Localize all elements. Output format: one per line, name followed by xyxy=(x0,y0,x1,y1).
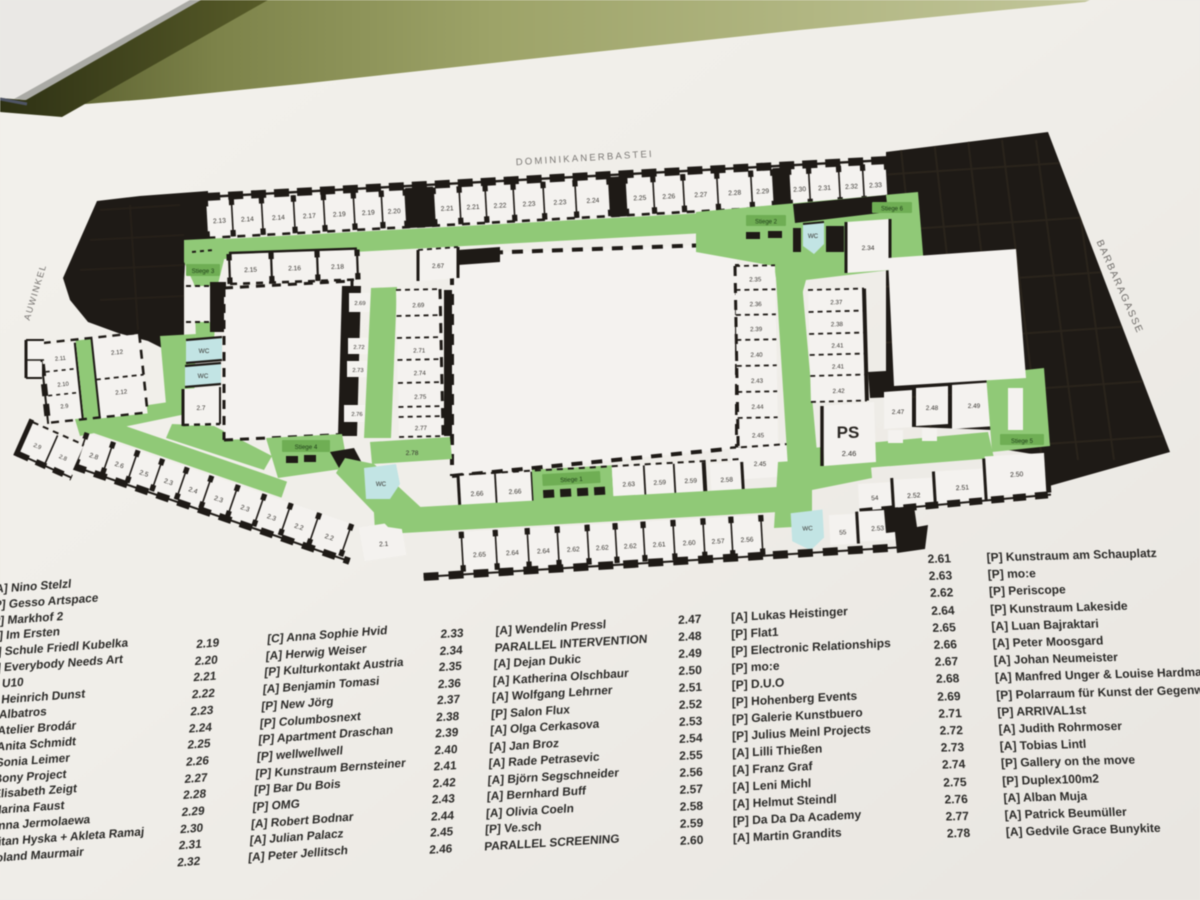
svg-text:Stiege 1: Stiege 1 xyxy=(560,476,584,484)
svg-text:2.63: 2.63 xyxy=(622,481,635,489)
svg-text:2.9: 2.9 xyxy=(60,404,69,411)
svg-text:2.15: 2.15 xyxy=(244,267,257,274)
svg-text:2.24: 2.24 xyxy=(586,197,600,205)
svg-text:2.58: 2.58 xyxy=(720,476,733,484)
svg-text:2.62: 2.62 xyxy=(624,543,638,551)
svg-text:2.42: 2.42 xyxy=(833,388,846,395)
svg-text:2.38: 2.38 xyxy=(831,321,844,328)
svg-text:2.43: 2.43 xyxy=(751,378,764,385)
svg-text:2.59: 2.59 xyxy=(653,479,666,487)
svg-text:2.31: 2.31 xyxy=(818,185,832,193)
svg-text:Stiege 5: Stiege 5 xyxy=(1011,439,1034,445)
svg-text:2.71: 2.71 xyxy=(413,347,426,354)
svg-text:2.14: 2.14 xyxy=(272,214,286,222)
svg-text:2.52: 2.52 xyxy=(907,492,921,500)
svg-text:2.72: 2.72 xyxy=(353,345,364,351)
svg-text:2.25: 2.25 xyxy=(633,195,647,203)
svg-text:2.34: 2.34 xyxy=(862,245,875,252)
svg-text:2.22: 2.22 xyxy=(493,202,507,210)
svg-text:2.62: 2.62 xyxy=(596,545,610,553)
svg-text:2.49: 2.49 xyxy=(968,403,981,410)
svg-text:2.50: 2.50 xyxy=(1010,471,1024,479)
svg-text:2.56: 2.56 xyxy=(740,536,754,544)
svg-text:2.40: 2.40 xyxy=(750,352,763,359)
svg-text:2.12: 2.12 xyxy=(111,349,124,357)
svg-text:2.1: 2.1 xyxy=(379,541,389,549)
svg-text:2.73: 2.73 xyxy=(352,368,363,374)
svg-text:2.17: 2.17 xyxy=(303,213,317,221)
svg-text:2.28: 2.28 xyxy=(728,190,742,198)
svg-text:2.75: 2.75 xyxy=(414,394,427,401)
svg-text:55: 55 xyxy=(839,529,847,536)
svg-text:2.37: 2.37 xyxy=(830,299,843,306)
svg-text:2.69: 2.69 xyxy=(354,301,365,307)
svg-text:2.47: 2.47 xyxy=(892,409,905,416)
svg-text:2.23: 2.23 xyxy=(522,201,536,209)
svg-text:2.33: 2.33 xyxy=(869,182,883,190)
svg-text:2.41: 2.41 xyxy=(831,342,844,349)
svg-text:2.36: 2.36 xyxy=(750,301,763,308)
svg-text:2.61: 2.61 xyxy=(653,541,667,549)
svg-text:2.32: 2.32 xyxy=(845,183,859,191)
svg-text:2.7: 2.7 xyxy=(197,405,206,412)
svg-text:54: 54 xyxy=(871,495,879,502)
svg-text:2.48: 2.48 xyxy=(926,405,939,412)
svg-text:2.13: 2.13 xyxy=(213,217,227,225)
svg-text:WC: WC xyxy=(199,348,210,355)
svg-text:2.45: 2.45 xyxy=(754,461,767,468)
svg-text:Stiege 3: Stiege 3 xyxy=(192,268,215,275)
svg-text:2.77: 2.77 xyxy=(415,425,428,432)
svg-text:PS: PS xyxy=(837,423,860,442)
svg-text:2.12: 2.12 xyxy=(115,388,128,396)
svg-text:2.21: 2.21 xyxy=(467,204,481,212)
svg-text:2.14: 2.14 xyxy=(241,216,255,224)
svg-text:2.29: 2.29 xyxy=(756,188,770,196)
svg-text:Stiege 6: Stiege 6 xyxy=(881,207,904,213)
svg-text:2.26: 2.26 xyxy=(662,193,676,201)
svg-text:2.64: 2.64 xyxy=(537,548,551,556)
svg-text:WC: WC xyxy=(808,233,819,240)
svg-text:2.74: 2.74 xyxy=(414,370,427,377)
svg-text:2.21: 2.21 xyxy=(441,205,455,213)
svg-text:2.60: 2.60 xyxy=(683,540,697,548)
svg-text:2.44: 2.44 xyxy=(751,404,764,411)
svg-text:2.78: 2.78 xyxy=(406,450,419,457)
svg-text:Stiege 2: Stiege 2 xyxy=(755,220,778,226)
svg-text:2.16: 2.16 xyxy=(288,265,301,272)
svg-text:2.23: 2.23 xyxy=(553,199,567,207)
svg-text:2.51: 2.51 xyxy=(956,484,970,492)
svg-text:2.10: 2.10 xyxy=(57,382,69,389)
svg-text:2.35: 2.35 xyxy=(749,276,762,283)
svg-text:2.57: 2.57 xyxy=(712,538,726,546)
svg-text:WC: WC xyxy=(802,525,813,533)
svg-text:Stiege 4: Stiege 4 xyxy=(295,444,318,451)
svg-text:2.39: 2.39 xyxy=(750,326,763,333)
svg-text:2.11: 2.11 xyxy=(55,356,66,363)
svg-text:2.45: 2.45 xyxy=(752,432,765,439)
svg-text:2.30: 2.30 xyxy=(793,186,807,194)
svg-text:2.59: 2.59 xyxy=(684,477,697,485)
svg-text:2.53: 2.53 xyxy=(871,525,885,533)
svg-text:2.18: 2.18 xyxy=(331,264,344,271)
svg-text:2.19: 2.19 xyxy=(333,211,347,219)
svg-text:2.64: 2.64 xyxy=(506,550,520,558)
svg-text:2.65: 2.65 xyxy=(473,551,487,559)
svg-text:2.76: 2.76 xyxy=(351,412,362,418)
svg-text:2.66: 2.66 xyxy=(470,490,484,498)
svg-text:2.69: 2.69 xyxy=(412,302,425,309)
svg-text:2.20: 2.20 xyxy=(388,208,402,216)
svg-text:2.19: 2.19 xyxy=(362,209,376,217)
svg-text:WC: WC xyxy=(376,481,387,488)
svg-text:2.67: 2.67 xyxy=(432,263,445,270)
svg-text:2.62: 2.62 xyxy=(567,546,581,554)
svg-text:2.41: 2.41 xyxy=(832,363,845,370)
svg-text:2.66: 2.66 xyxy=(508,488,522,496)
svg-text:2.46: 2.46 xyxy=(842,449,857,458)
svg-text:WC: WC xyxy=(198,373,209,380)
svg-text:2.27: 2.27 xyxy=(694,191,708,199)
